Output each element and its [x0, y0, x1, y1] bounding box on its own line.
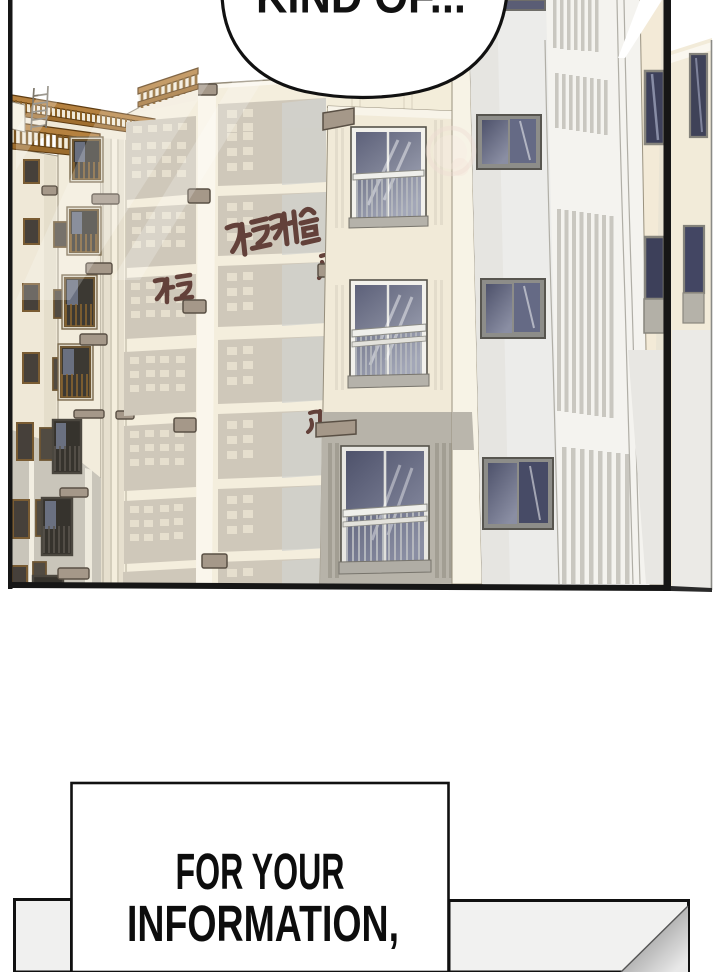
svg-text:INFORMATION,: INFORMATION, — [127, 895, 399, 952]
svg-text:KIND OF...: KIND OF... — [256, 0, 466, 23]
svg-text:FOR YOUR: FOR YOUR — [176, 843, 345, 900]
